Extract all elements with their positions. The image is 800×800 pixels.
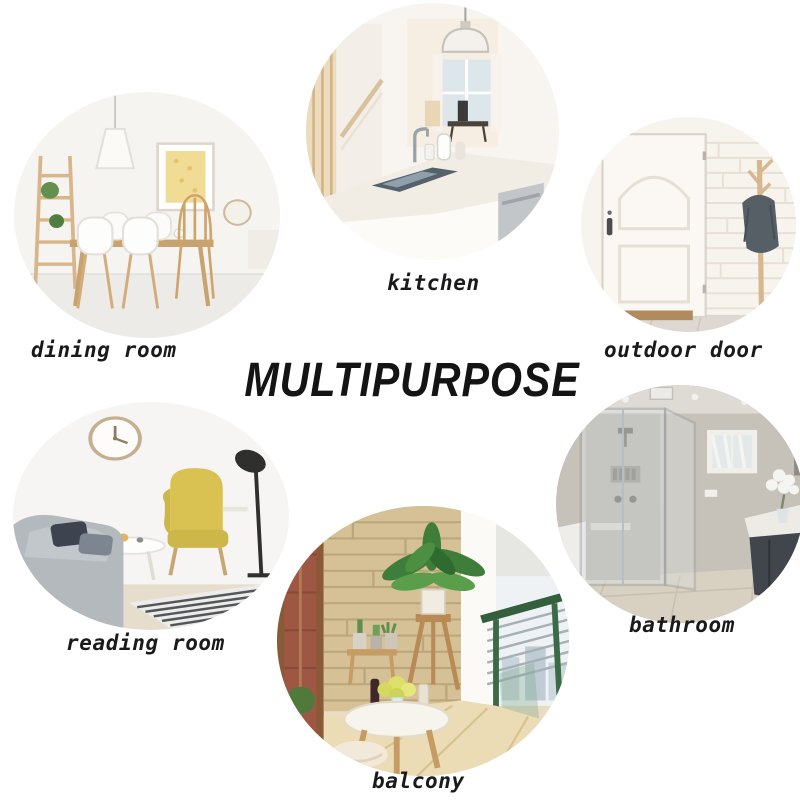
- bathroom-photo: [556, 385, 800, 623]
- balcony-label: balcony: [372, 771, 465, 792]
- dishwasher: [498, 183, 544, 250]
- door-handle: [607, 218, 613, 235]
- kitchen-photo: [306, 3, 559, 260]
- outdoor-door-illustration: [581, 117, 796, 332]
- outdoor-door-photo: [581, 117, 796, 332]
- bathroom-illustration: [556, 385, 800, 623]
- balcony-photo: [277, 506, 569, 776]
- window-with-brick-view: [277, 506, 324, 776]
- panel-door: [603, 134, 707, 317]
- dining-room-photo: [14, 92, 280, 338]
- wall-clock: [90, 418, 140, 459]
- outdoor-door-label: outdoor door: [604, 340, 763, 361]
- plush-stool: [330, 741, 388, 768]
- wall-sconce: [794, 418, 800, 475]
- bathroom-label: bathroom: [629, 615, 735, 636]
- dining-room-illustration: [14, 92, 280, 338]
- wood-slats: [306, 24, 336, 224]
- doormat: [615, 311, 692, 321]
- walk-in-shower: [581, 409, 695, 590]
- reading-room-photo: [13, 402, 289, 630]
- white-pillar: [461, 506, 496, 717]
- multipurpose-collage: MULTIPURPOSE dining room kitchen outdoor…: [0, 0, 800, 800]
- dining-room-label: dining room: [31, 340, 177, 361]
- ceiling: [556, 385, 800, 414]
- bathroom-window: [710, 433, 755, 471]
- reading-room-illustration: [13, 402, 289, 630]
- grey-sofa: [13, 515, 123, 630]
- reading-room-label: reading room: [66, 633, 225, 654]
- balcony-illustration: [277, 506, 569, 776]
- kitchen-label: kitchen: [387, 273, 480, 294]
- wall-hook: [587, 289, 598, 293]
- kitchen-illustration: [306, 3, 559, 260]
- collage-title: MULTIPURPOSE: [238, 357, 585, 405]
- daybed: [248, 230, 280, 269]
- round-mirror: [224, 200, 251, 225]
